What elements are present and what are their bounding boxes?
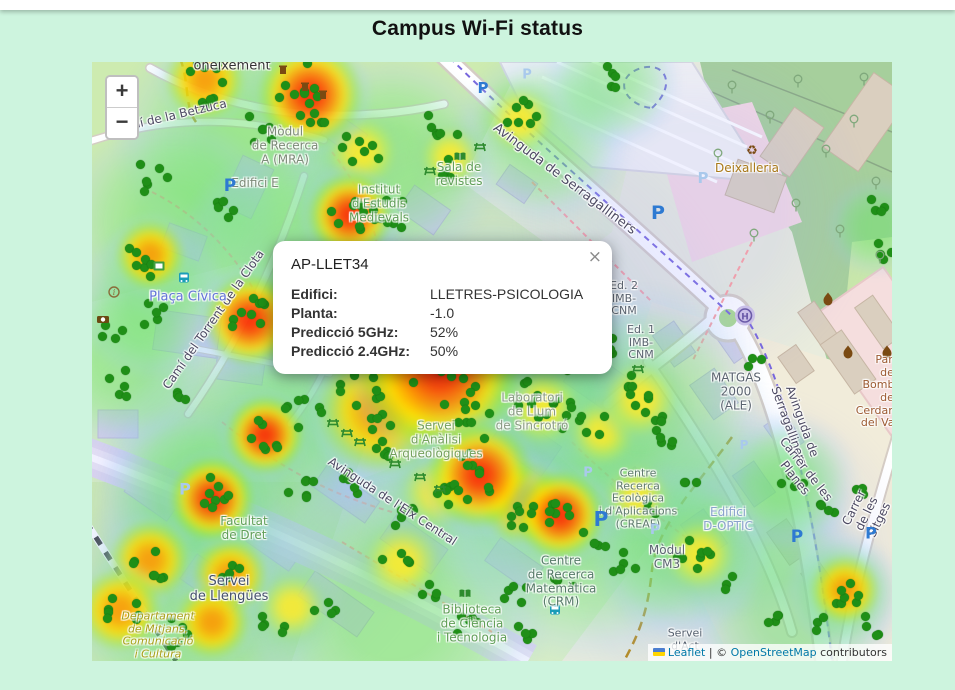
popup-row-value: 52% [430,323,588,341]
popup-row-value: LLETRES-PSICOLOGIA [430,285,588,303]
page: Campus Wi-Fi status [0,0,955,690]
attribution-copyright: © [716,646,727,659]
map-attribution: Leaflet | © OpenStreetMap contributors [648,644,892,661]
osm-link[interactable]: OpenStreetMap [731,646,817,659]
zoom-in-button[interactable]: + [107,77,137,108]
popup-close-button[interactable]: × [588,247,602,267]
popup-row-label: Predicció 5GHz: [291,323,430,341]
attribution-suffix: contributors [817,646,887,659]
popup-row-value: -1.0 [430,304,588,322]
page-title: Campus Wi-Fi status [0,17,955,41]
zoom-control: + − [105,75,139,140]
popup-rows: Edifici: LLETRES-PSICOLOGIA Planta: -1.0… [291,285,588,360]
zoom-out-button[interactable]: − [107,108,137,138]
ukraine-flag-icon [653,648,665,656]
popup-row-label: Edifici: [291,285,430,303]
leaflet-link[interactable]: Leaflet [668,646,705,659]
popup-row-label: Planta: [291,304,430,322]
popup-row-label: Predicció 2.4GHz: [291,342,430,360]
app-background: Campus Wi-Fi status [0,10,955,690]
ap-popup: × AP-LLET34 Edifici: LLETRES-PSICOLOGIA … [273,241,612,374]
attribution-separator: | [709,646,713,659]
map[interactable]: i♻H oneixementCamí de la BetzucaCamí del… [92,62,892,661]
popup-row-value: 50% [430,342,588,360]
top-bar [0,0,955,10]
popup-title: AP-LLET34 [291,256,588,273]
